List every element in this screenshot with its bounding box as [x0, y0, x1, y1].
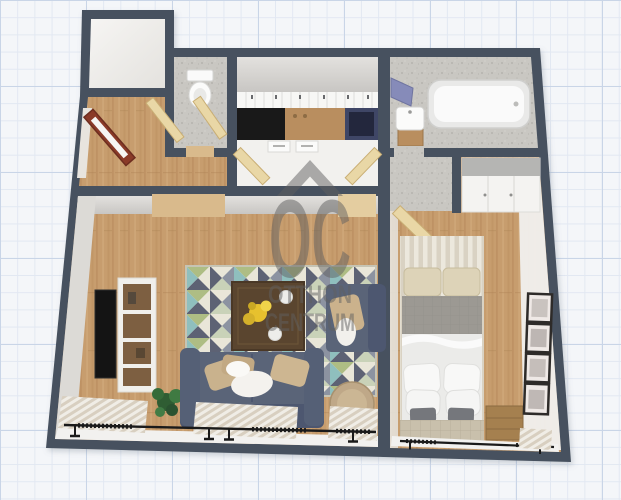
wardrobe	[462, 158, 540, 212]
wood-counter	[285, 108, 345, 140]
kitchen-counter	[237, 108, 378, 140]
wall-frames	[524, 294, 552, 415]
floor-plan-canvas: OC OTTHON CENTRUM	[0, 0, 621, 500]
vestibule-floor	[390, 157, 452, 211]
upper-cabinet-fronts	[237, 92, 378, 108]
room-bedroom	[390, 157, 561, 454]
floor-plan-rendering: OC OTTHON CENTRUM	[0, 0, 621, 500]
sofa-pillow-white-2	[226, 361, 250, 377]
headboard-cushion-right	[443, 268, 480, 296]
watermark: OC OTTHON CENTRUM	[265, 160, 355, 337]
storage-floor	[89, 19, 165, 88]
vestibule-wall	[452, 157, 461, 213]
upper-cabinets-top	[237, 57, 378, 92]
cooktop	[349, 112, 374, 136]
bathroom-sink	[396, 107, 424, 146]
black-counter	[237, 108, 285, 140]
room-bathroom	[390, 57, 538, 159]
tv	[95, 290, 116, 378]
bathtub	[428, 80, 530, 128]
watermark-line1: OTTHON	[268, 281, 352, 309]
room-storage	[89, 19, 165, 88]
tv-stand	[118, 278, 156, 392]
hall-doorway-threshold	[152, 194, 225, 217]
bedroom-curtain	[519, 428, 552, 450]
headboard-cushion-left	[404, 268, 441, 296]
watermark-line2: CENTRUM	[265, 309, 355, 337]
